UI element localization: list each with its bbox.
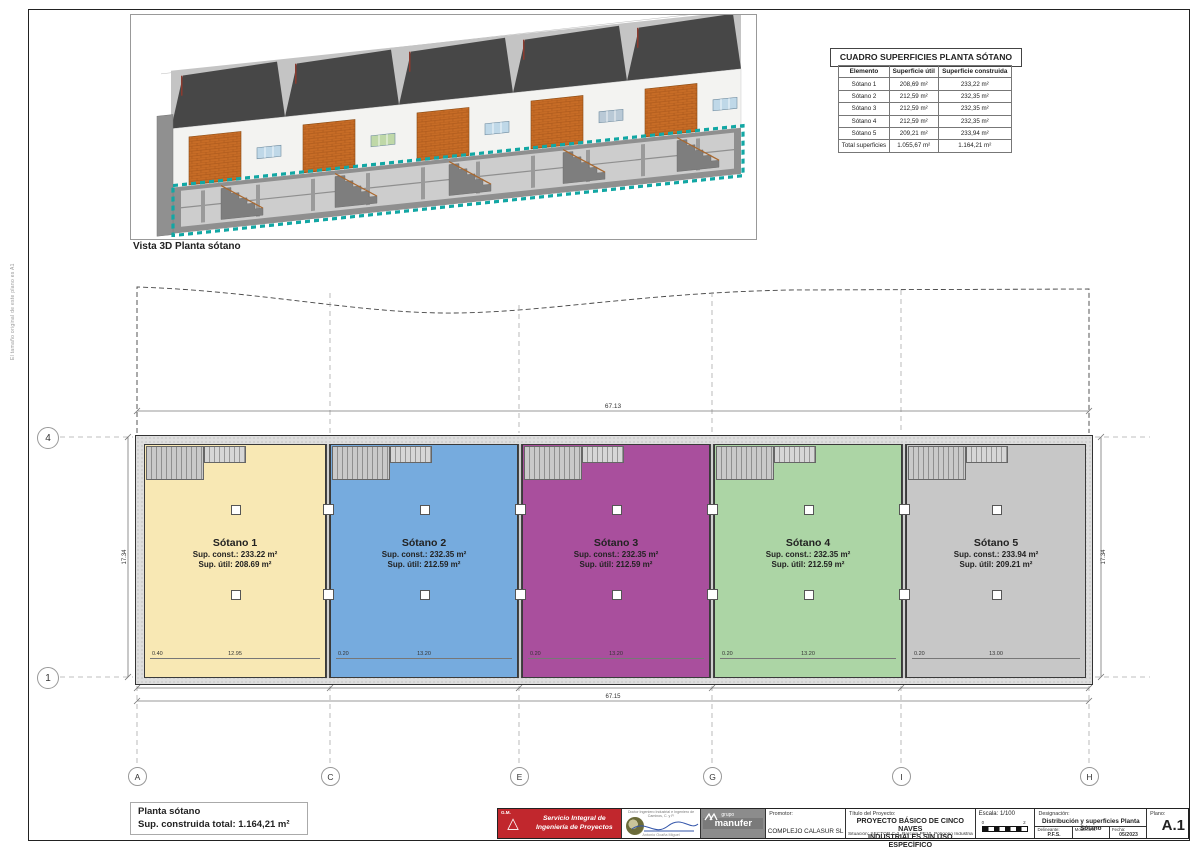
fecha-field: Fecha:05/2023 (1109, 827, 1146, 838)
dimension-line (912, 658, 1080, 659)
column (707, 589, 718, 600)
dimension-line (720, 658, 896, 659)
3d-view-caption: Vista 3D Planta sótano (133, 241, 241, 252)
3d-isometric-rendering (131, 15, 754, 237)
company-name: Servicio Integral de Ingeniería de Proye… (528, 815, 621, 832)
unit-label: Sótano 4 Sup. const.: 232.35 m² Sup. úti… (715, 537, 901, 570)
unit-label: Sótano 3 Sup. const.: 232.35 m² Sup. úti… (523, 537, 709, 570)
dimension-line (150, 658, 320, 659)
stairs-icon (332, 446, 390, 480)
title-block: G.M. △ Servicio Integral de Ingeniería d… (497, 808, 1189, 839)
column (515, 589, 526, 600)
scale-cell: Escala: 1/100 0 2 (975, 809, 1035, 838)
table-row: Sótano 5209,21 m²233,94 m² (839, 127, 1012, 139)
grid-col-bubble: G (703, 767, 722, 786)
grid-col-bubble: E (510, 767, 529, 786)
scale-label: Escala: 1/100 (979, 811, 1015, 817)
modifica-field: Modifica a: (1072, 827, 1109, 838)
stairs-icon (204, 446, 246, 463)
unit-label: Sótano 2 Sup. const.: 232.35 m² Sup. úti… (331, 537, 517, 570)
grid-col-bubble: C (321, 767, 340, 786)
table-row: Sótano 1208,69 m²233,22 m² (839, 78, 1012, 90)
summary-title: Planta sótano (138, 806, 300, 817)
unit-sotano-2: Sótano 2 Sup. const.: 232.35 m² Sup. úti… (330, 444, 518, 678)
drawing-sheet: El tamaño original de este plano es A1 (0, 0, 1200, 848)
surfaces-table: Elemento Superficie útil Superficie cons… (838, 65, 1012, 153)
3d-view-panel (130, 14, 757, 240)
engineer-name: Antonio Ocaña Miguel (624, 833, 699, 837)
col-header: Elemento (839, 66, 890, 78)
stairs-icon (774, 446, 816, 463)
table-header-row: Elemento Superficie útil Superficie cons… (839, 66, 1012, 78)
grid-col-bubble: A (128, 767, 147, 786)
column (899, 589, 910, 600)
group-logo-cell: grupo manufer (700, 809, 765, 838)
stairs-icon (966, 446, 1008, 463)
summary-total: Sup. construida total: 1.164,21 m² (138, 819, 300, 830)
col-header: Superficie construida (938, 66, 1011, 78)
grid-col-bubble: I (892, 767, 911, 786)
unit-label: Sótano 5 Sup. const.: 233.94 m² Sup. úti… (907, 537, 1085, 570)
drafting-info-row: Delineante:P.F.S. Modifica a: Fecha:05/2… (1035, 826, 1146, 838)
promotor-label: Promotor: (769, 811, 793, 817)
triangle-logo-icon: △ (498, 816, 528, 831)
column (707, 504, 718, 515)
column (515, 504, 526, 515)
company-logo-cell: G.M. △ Servicio Integral de Ingeniería d… (498, 809, 621, 838)
sheet-number-cell: Plano: A.1 (1146, 809, 1188, 838)
scale-bar (982, 826, 1028, 832)
plano-value: A.1 (1162, 817, 1185, 834)
stairs-icon (524, 446, 582, 480)
stairs-icon (582, 446, 624, 463)
column (323, 589, 334, 600)
stairs-icon (908, 446, 966, 480)
unit-sotano-1: Sótano 1 Sup. const.: 233.22 m² Sup. úti… (144, 444, 326, 678)
end-wall (157, 115, 173, 237)
grid-col-bubble: H (1080, 767, 1099, 786)
project-location: Situación: SECTOR C-2, Parcela PE10, Pol… (848, 832, 973, 837)
stairs-icon (146, 446, 204, 480)
scale-bar-numbers: 0 2 (982, 820, 1026, 825)
manufer-logo-icon (704, 812, 720, 821)
promotor-value: COMPLEJO CALASUR SL (766, 828, 845, 835)
grid-row-bubble: 1 (37, 667, 59, 689)
unit-label: Sótano 1 Sup. const.: 233.22 m² Sup. úti… (145, 537, 325, 570)
promotor-cell: Promotor: COMPLEJO CALASUR SL (765, 809, 845, 838)
dimension-line (528, 658, 704, 659)
delineante-field: Delineante:P.F.S. (1035, 827, 1071, 838)
unit-sotano-3: Sótano 3 Sup. const.: 232.35 m² Sup. úti… (522, 444, 710, 678)
column (899, 504, 910, 515)
basement-floor-plan: Sótano 1 Sup. const.: 233.22 m² Sup. úti… (135, 435, 1093, 685)
table-row: Sótano 4212,59 m²232,35 m² (839, 115, 1012, 127)
stairs-icon (390, 446, 432, 463)
dimension-line (336, 658, 512, 659)
sheet-size-note: El tamaño original de este plano es A1 (10, 263, 16, 360)
table-row: Sótano 3212,59 m²232,35 m² (839, 103, 1012, 115)
company-initials: G.M. (501, 810, 511, 815)
table-row: Sótano 2212,59 m²232,35 m² (839, 90, 1012, 102)
designation-label: Designación: (1038, 811, 1069, 817)
unit-sotano-5: Sótano 5 Sup. const.: 233.94 m² Sup. úti… (906, 444, 1086, 678)
building-group (157, 15, 746, 237)
column (323, 504, 334, 515)
project-title-cell: Título del Proyecto: PROYECTO BÁSICO DE … (845, 809, 975, 838)
col-header: Superficie útil (889, 66, 938, 78)
designation-cell: Designación: Distribución y superficies … (1034, 809, 1146, 838)
engineer-stamp-cell: Doctor Ingeniero Industrial e Ingeniero … (621, 809, 701, 838)
plan-summary-box: Planta sótano Sup. construida total: 1.1… (130, 802, 308, 835)
grid-row-bubble: 4 (37, 427, 59, 449)
table-total-row: Total superficies1.055,67 m²1.164,21 m² (839, 140, 1012, 152)
unit-sotano-4: Sótano 4 Sup. const.: 232.35 m² Sup. úti… (714, 444, 902, 678)
stairs-icon (716, 446, 774, 480)
